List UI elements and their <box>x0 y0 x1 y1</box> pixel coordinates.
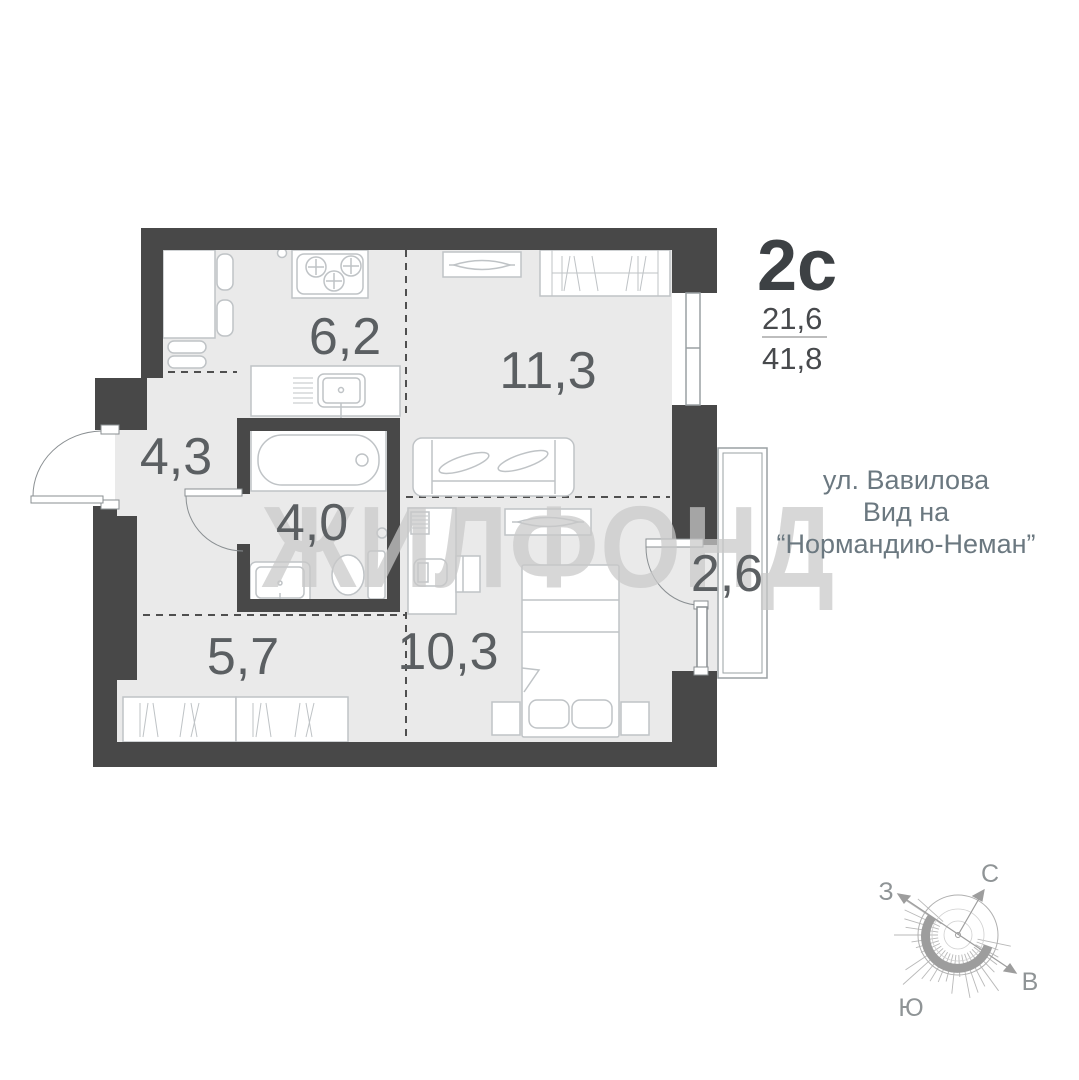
nightstand-right <box>621 702 649 735</box>
wardrobe-closets <box>123 697 348 742</box>
wall-left-upper <box>141 228 163 378</box>
sun-ray <box>962 955 970 998</box>
compass: С З В Ю <box>878 860 1038 1022</box>
wall-left-lower-step <box>115 516 137 680</box>
compass-south-label: Ю <box>898 994 923 1022</box>
total-area-value: 41,8 <box>762 341 822 376</box>
wall-top <box>141 228 717 250</box>
kitchen-stove <box>292 250 368 298</box>
living-wardrobe <box>540 250 670 296</box>
nightstand-left <box>492 702 520 735</box>
label-bedroom-area: 10,3 <box>397 623 498 681</box>
compass-west-label: З <box>878 878 893 906</box>
balcony-window-jamb-bottom <box>694 667 708 675</box>
wall-bottom <box>95 742 717 767</box>
label-balcony-area: 2,6 <box>691 545 763 603</box>
wall-entrance-upper <box>95 378 147 430</box>
compass-rays <box>894 899 1011 998</box>
label-living-area: 11,3 <box>499 342 596 400</box>
wall-right-bottom <box>672 671 717 767</box>
address-line-1: ул. Вавилова <box>823 465 990 495</box>
address-line-3: “Нормандию-Неман” <box>776 529 1035 559</box>
label-hallway-area: 4,3 <box>140 428 212 486</box>
entrance-door <box>31 425 119 509</box>
address-line-2: Вид на <box>863 497 950 527</box>
wall-left-lower <box>93 506 117 767</box>
label-kitchen-area: 6,2 <box>309 308 381 366</box>
wall-right-top <box>672 228 717 296</box>
floor-plan-page: ЖИЛФОНД 6,2 11,3 4,3 4,0 2,6 5,7 10,3 2с… <box>0 0 1079 1080</box>
arrow-north <box>973 890 984 901</box>
arrow-east <box>1004 964 1016 973</box>
label-wardrobe-area: 5,7 <box>207 628 279 686</box>
living-dresser <box>443 252 521 277</box>
label-bathroom-area: 4,0 <box>276 494 348 552</box>
living-window <box>672 293 717 405</box>
balcony-window <box>697 607 707 671</box>
floor-plan-canvas: ЖИЛФОНД 6,2 11,3 4,3 4,0 2,6 5,7 10,3 2с… <box>0 0 1079 1080</box>
apartment-header: 2с 21,6 41,8 <box>757 226 837 376</box>
compass-east-label: В <box>1022 968 1039 996</box>
compass-north-label: С <box>981 860 999 888</box>
apartment-type: 2с <box>757 226 837 306</box>
kitchen-sink-counter <box>251 366 400 418</box>
wall-bathroom-left-upper <box>237 418 250 494</box>
living-area-value: 21,6 <box>762 301 822 336</box>
wall-bathroom-top <box>237 418 400 431</box>
